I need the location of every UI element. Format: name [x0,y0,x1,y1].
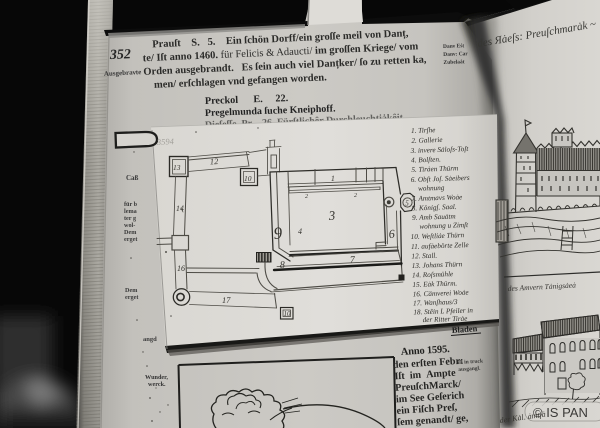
svg-text:9. Amb Sauȧtm: 9. Amb Sauȧtm [412,212,456,222]
svg-text:angd: angd [143,336,157,343]
svg-text:16: 16 [177,264,185,273]
svg-text:13: 13 [173,163,181,172]
svg-text:Danν: Car: Danν: Car [443,51,468,58]
svg-text:5. Tirȧen Thürm: 5. Tirȧen Thürm [411,164,458,174]
svg-text:2: 2 [305,194,308,200]
svg-text:352: 352 [109,47,132,63]
svg-text:4. Bolſten.: 4. Bolſten. [411,155,441,164]
svg-text:10: 10 [244,174,252,183]
svg-text:1: 1 [331,174,335,183]
svg-text:Danν Eśt: Danν Eśt [443,43,465,50]
svg-text:2. Gallerie: 2. Gallerie [411,136,443,145]
svg-text:17. Wanſhaus/3: 17. Wanſhaus/3 [413,298,458,308]
svg-text:17: 17 [222,295,231,305]
svg-text:12. Stall.: 12. Stall. [411,252,437,261]
svg-text:15. Eȧk Thürm.: 15. Eȧk Thürm. [412,279,457,289]
svg-text:3594: 3594 [156,136,175,147]
svg-text:10: 10 [284,310,292,318]
svg-text:Zubelaȧt: Zubelaȧt [443,59,464,66]
svg-text:4: 4 [298,227,302,236]
svg-text:6: 6 [388,227,395,241]
svg-text:8. Königſ. Saal.: 8. Königſ. Saal. [412,203,457,213]
svg-text:ter g: ter g [124,215,137,222]
svg-text:Dem: Dem [125,287,138,294]
svg-text:8: 8 [280,260,286,271]
svg-text:für b: für b [124,201,138,208]
svg-text:Dem: Dem [124,229,137,236]
svg-text:wohnung: wohnung [418,184,445,193]
svg-text:Wunder,: Wunder, [145,374,168,381]
svg-text:erget: erget [125,294,139,301]
svg-text:wol-: wol- [124,222,135,229]
svg-text:14. Roſsmühle: 14. Roſsmühle [412,270,454,279]
svg-text:2: 2 [354,193,357,199]
svg-text:lema: lema [124,208,137,215]
svg-text:14: 14 [176,204,184,213]
svg-text:12: 12 [209,156,219,167]
svg-text:5: 5 [405,200,409,208]
svg-text:der Ritter Tirȧe: der Ritter Tirȧe [423,315,469,325]
svg-text:erget: erget [124,236,138,243]
svg-text:Caß: Caß [126,174,139,182]
svg-text:1. Tirſhe: 1. Tirſhe [411,126,436,135]
svg-text:werck.: werck. [148,381,166,388]
